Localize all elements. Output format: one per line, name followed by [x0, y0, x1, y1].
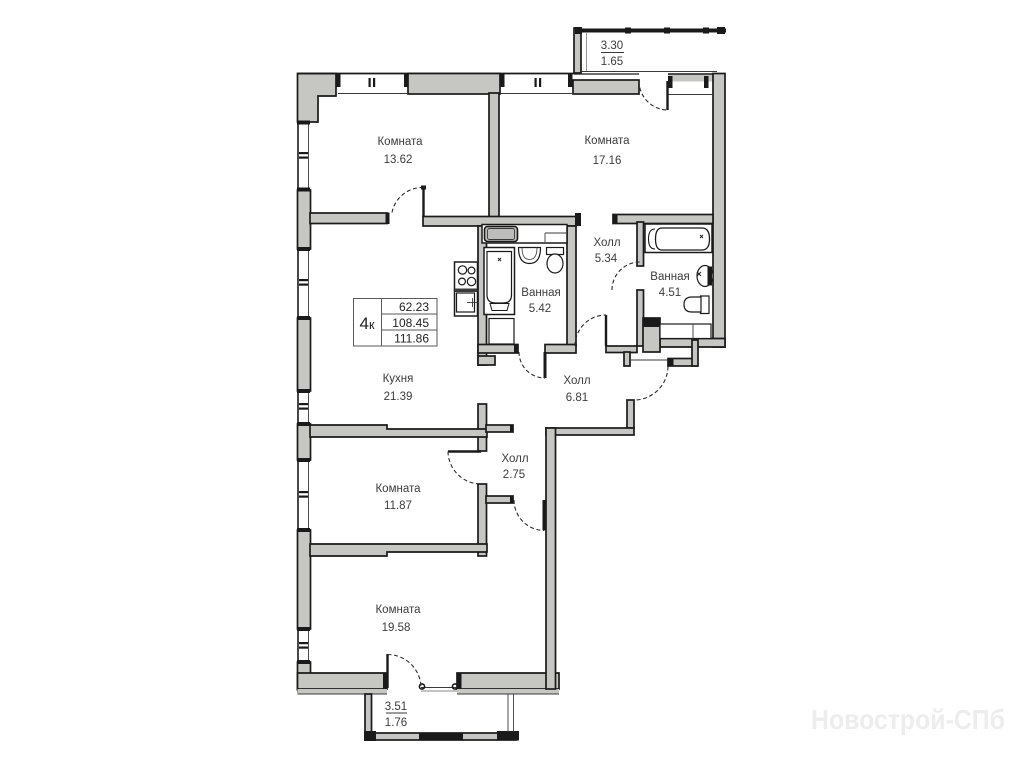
svg-text:Новострой-СПб: Новострой-СПб — [811, 704, 1005, 735]
svg-text:Комната: Комната — [377, 136, 423, 148]
svg-text:108.45: 108.45 — [392, 316, 429, 330]
svg-text:Холл: Холл — [593, 237, 620, 249]
svg-text:21.39: 21.39 — [384, 391, 413, 403]
svg-text:Холл: Холл — [563, 375, 590, 387]
svg-text:2.75: 2.75 — [503, 469, 525, 481]
svg-text:11.87: 11.87 — [384, 500, 412, 512]
svg-text:Комната: Комната — [375, 483, 421, 495]
svg-text:4.51: 4.51 — [659, 287, 681, 299]
svg-text:19.58: 19.58 — [382, 622, 411, 634]
svg-text:Ванная: Ванная — [650, 271, 689, 283]
svg-text:6.81: 6.81 — [566, 392, 588, 404]
svg-text:62.23: 62.23 — [399, 300, 429, 314]
svg-text:3.51: 3.51 — [385, 701, 407, 713]
svg-text:13.62: 13.62 — [384, 154, 413, 166]
svg-text:1.65: 1.65 — [601, 56, 623, 68]
svg-text:Кухня: Кухня — [383, 373, 414, 385]
svg-text:Комната: Комната — [584, 135, 630, 147]
svg-text:111.86: 111.86 — [394, 332, 429, 346]
svg-text:5.42: 5.42 — [529, 303, 551, 315]
svg-text:Холл: Холл — [501, 453, 528, 465]
svg-text:Комната: Комната — [375, 604, 421, 616]
svg-text:1.76: 1.76 — [385, 717, 407, 729]
svg-text:3.30: 3.30 — [601, 40, 623, 52]
svg-text:5.34: 5.34 — [595, 253, 618, 265]
svg-text:Ванная: Ванная — [521, 287, 560, 299]
svg-text:17.16: 17.16 — [593, 155, 622, 167]
